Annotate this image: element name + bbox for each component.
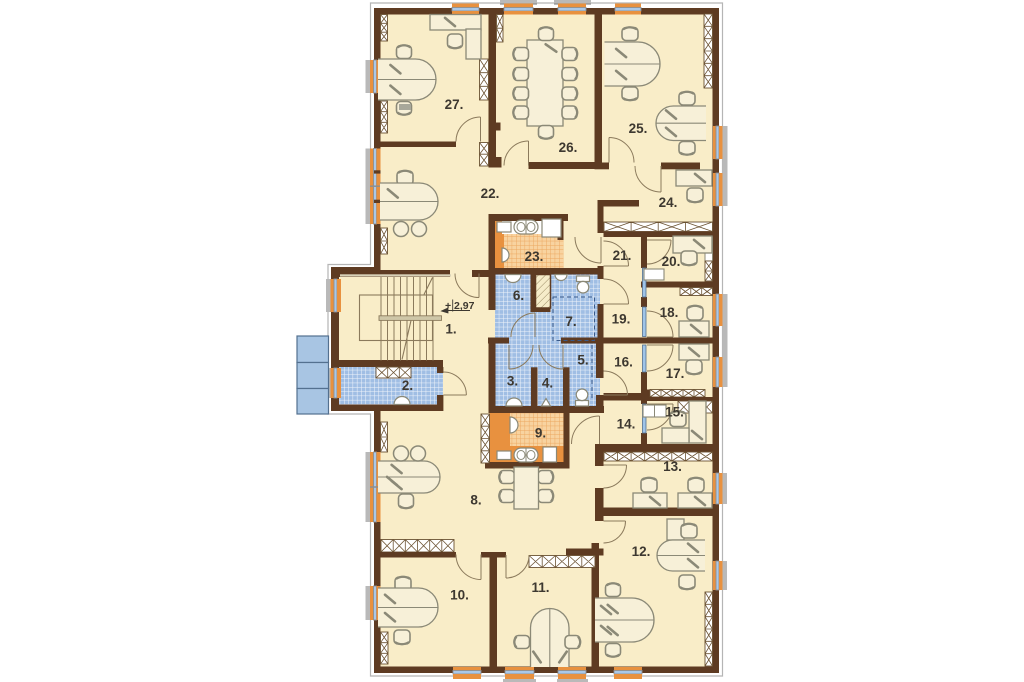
svg-text:15.: 15. xyxy=(665,405,684,420)
svg-text:20.: 20. xyxy=(662,254,681,269)
svg-text:13.: 13. xyxy=(663,459,682,474)
svg-text:21.: 21. xyxy=(613,248,632,263)
svg-text:25.: 25. xyxy=(629,121,648,136)
svg-text:19.: 19. xyxy=(612,312,631,327)
svg-text:27.: 27. xyxy=(445,97,464,112)
svg-text:17.: 17. xyxy=(666,366,685,381)
svg-text:8.: 8. xyxy=(470,493,481,508)
svg-text:1.: 1. xyxy=(445,322,456,337)
svg-text:11.: 11. xyxy=(531,580,549,595)
svg-text:26.: 26. xyxy=(559,140,578,155)
svg-text:12.: 12. xyxy=(632,544,651,559)
svg-text:4.: 4. xyxy=(542,376,553,391)
svg-text:6.: 6. xyxy=(513,288,524,303)
svg-text:9.: 9. xyxy=(535,426,546,441)
svg-text:10.: 10. xyxy=(450,588,469,603)
svg-text:24.: 24. xyxy=(659,195,678,210)
svg-text:14.: 14. xyxy=(617,417,636,432)
svg-text:5.: 5. xyxy=(577,353,588,368)
svg-text:3.: 3. xyxy=(507,374,518,389)
svg-text:23.: 23. xyxy=(525,249,544,264)
svg-text:16.: 16. xyxy=(614,355,633,370)
svg-text:22.: 22. xyxy=(481,186,500,201)
svg-text:2.: 2. xyxy=(402,378,413,393)
svg-text:18.: 18. xyxy=(660,305,679,320)
svg-text:7.: 7. xyxy=(565,314,576,329)
